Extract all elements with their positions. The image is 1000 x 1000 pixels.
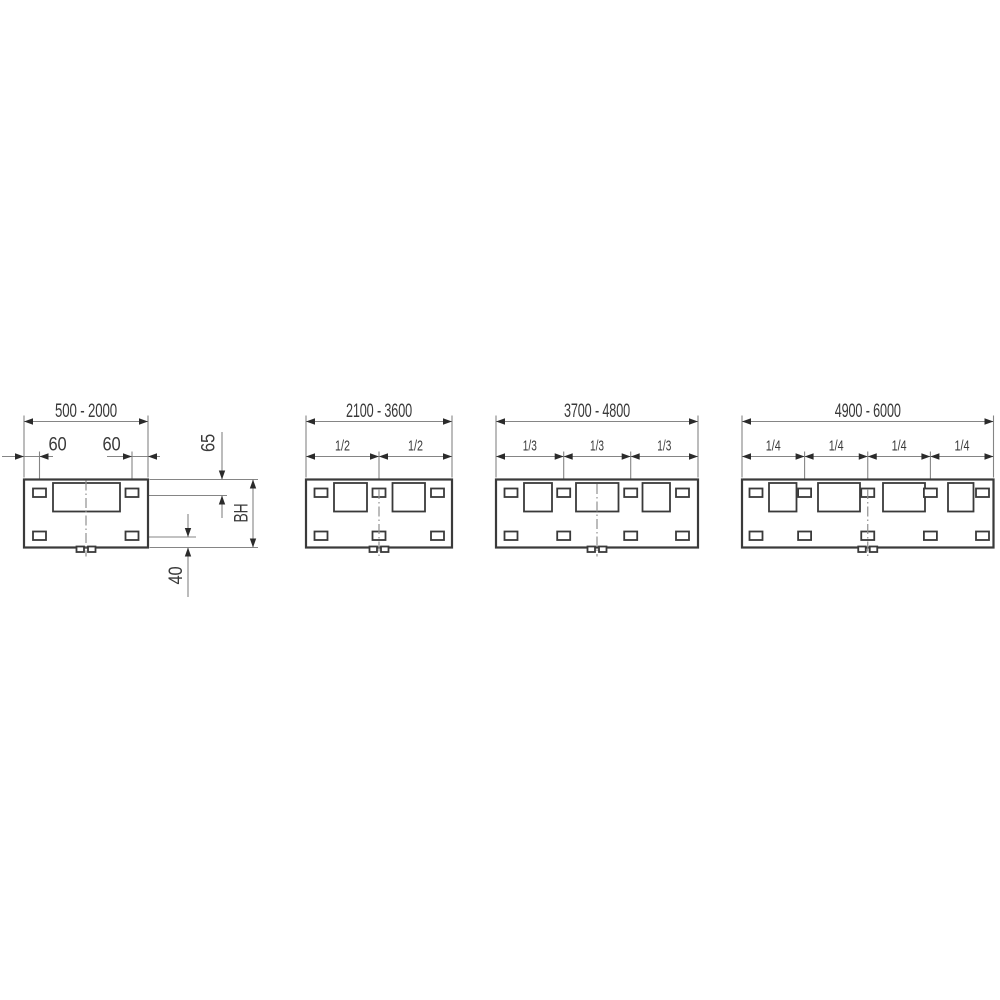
arrowhead-right-icon (689, 453, 698, 459)
right-hole-offset-label: 60 (103, 435, 121, 456)
mounting-slot (676, 489, 689, 498)
panel-4-group: 4900 - 6000 1/4 1/4 1/4 1/4 (742, 401, 994, 557)
arrowhead-right-icon (985, 418, 994, 424)
arrowhead-right-icon (123, 453, 132, 459)
mounting-slot (126, 489, 139, 498)
mounting-tab (870, 547, 878, 553)
mounting-slot (431, 532, 444, 541)
mounting-slot (33, 532, 46, 541)
mounting-slot (505, 532, 518, 541)
arrowhead-down-icon (219, 471, 225, 480)
arrowhead-left-icon (631, 453, 640, 459)
door-cutout (818, 483, 860, 512)
mounting-tab (599, 547, 607, 553)
fraction-label: 1/2 (408, 439, 423, 455)
arrowhead-right-icon (370, 453, 379, 459)
door-cutout (334, 483, 367, 512)
arrowhead-left-icon (742, 453, 751, 459)
door-cutout (948, 483, 974, 512)
mounting-tab (381, 547, 389, 553)
arrowhead-up-icon (219, 496, 225, 505)
mounting-slot (557, 532, 570, 541)
arrowhead-left-icon (868, 453, 877, 459)
fraction-label: 1/3 (523, 439, 537, 455)
mounting-tab (588, 547, 596, 553)
fraction-label: 1/4 (829, 439, 844, 455)
panel-2-group: 2100 - 3600 1/2 1/2 (306, 401, 452, 557)
fraction-label: 1/4 (955, 439, 970, 455)
arrowhead-right-icon (443, 453, 452, 459)
mounting-slot (798, 532, 811, 541)
left-hole-offset-label: 60 (49, 435, 67, 456)
mounting-slot (676, 532, 689, 541)
fraction-label: 1/3 (657, 439, 671, 455)
arrowhead-up-icon (250, 480, 256, 489)
fraction-label: 1/3 (590, 439, 604, 455)
mounting-slot (976, 489, 989, 498)
mounting-slot (750, 532, 763, 541)
arrowhead-left-icon (148, 453, 157, 459)
panel-1-group: 500 - 2000 60 60 65 BH 40 (2, 401, 258, 597)
mounting-slot (431, 489, 444, 498)
arrowhead-right-icon (796, 453, 805, 459)
arrowhead-down-icon (250, 539, 256, 548)
mounting-tab (77, 547, 85, 553)
door-cutout (524, 483, 552, 512)
arrowhead-left-icon (306, 418, 315, 424)
arrowhead-right-icon (15, 453, 24, 459)
arrowhead-right-icon (985, 453, 994, 459)
mounting-slot (924, 489, 937, 498)
arrowhead-left-icon (930, 453, 939, 459)
arrowhead-right-icon (689, 418, 698, 424)
mounting-slot (33, 489, 46, 498)
arrowhead-right-icon (555, 453, 564, 459)
door-cutout (393, 483, 426, 512)
mounting-tab (88, 547, 96, 553)
panel-dimension-diagram: 500 - 2000 60 60 65 BH 40 (0, 0, 1000, 1000)
top-hole-offset-label: 65 (199, 434, 220, 452)
arrowhead-left-icon (379, 453, 388, 459)
arrowhead-right-icon (443, 418, 452, 424)
body-height-label: BH (232, 504, 253, 523)
mounting-slot (557, 489, 570, 498)
mounting-slot (505, 489, 518, 498)
mounting-slot (798, 489, 811, 498)
arrowhead-right-icon (859, 453, 868, 459)
mounting-slot (624, 489, 637, 498)
panel-3-group: 3700 - 4800 1/3 1/3 1/3 (496, 401, 698, 557)
arrowhead-left-icon (24, 418, 33, 424)
mounting-slot (624, 532, 637, 541)
bottom-hole-offset-label: 40 (166, 567, 187, 585)
fraction-label: 1/4 (892, 439, 907, 455)
fraction-label: 1/2 (335, 439, 350, 455)
range-dimension-label: 3700 - 4800 (564, 401, 630, 422)
mounting-tab (858, 547, 866, 553)
arrowhead-left-icon (40, 453, 49, 459)
mounting-slot (315, 489, 328, 498)
range-dimension-label: 4900 - 6000 (835, 401, 901, 422)
arrowhead-left-icon (496, 453, 505, 459)
arrowhead-left-icon (496, 418, 505, 424)
door-cutout (643, 483, 671, 512)
arrowhead-left-icon (564, 453, 573, 459)
mounting-slot (924, 532, 937, 541)
dimension-drawing-page: 500 - 2000 60 60 65 BH 40 (0, 0, 1000, 1000)
arrowhead-left-icon (306, 453, 315, 459)
arrowhead-right-icon (139, 418, 148, 424)
range-dimension-label: 500 - 2000 (55, 401, 117, 422)
door-cutout (769, 483, 797, 512)
arrowhead-right-icon (921, 453, 930, 459)
arrowhead-left-icon (805, 453, 814, 459)
arrowhead-right-icon (622, 453, 631, 459)
mounting-slot (126, 532, 139, 541)
mounting-slot (976, 532, 989, 541)
mounting-slot (315, 532, 328, 541)
door-cutout (883, 483, 925, 512)
mounting-tab (370, 547, 378, 553)
arrowhead-down-icon (185, 528, 191, 537)
range-dimension-label: 2100 - 3600 (346, 401, 412, 422)
arrowhead-up-icon (185, 548, 191, 557)
arrowhead-left-icon (742, 418, 751, 424)
mounting-slot (750, 489, 763, 498)
fraction-label: 1/4 (766, 439, 781, 455)
